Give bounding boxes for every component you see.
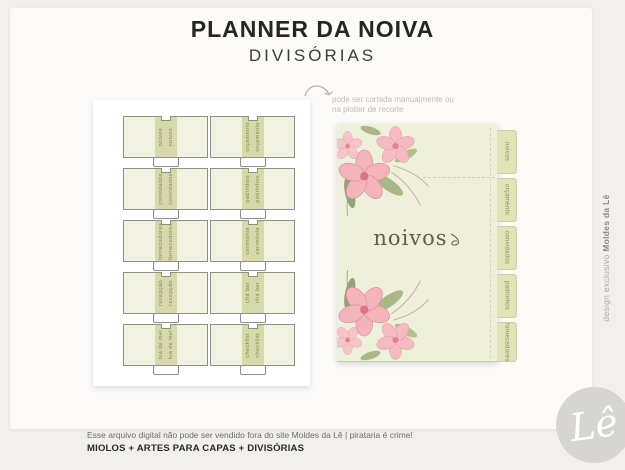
tab-notch — [161, 116, 171, 121]
divider-card: chá bar chá bar — [210, 272, 295, 314]
index-tab-label: orçamento — [504, 184, 510, 215]
copyright-notice: Esse arquivo digital não pode ser vendid… — [87, 430, 413, 440]
tab-notch — [161, 272, 171, 277]
logo-monogram: Lê — [568, 403, 621, 447]
tab-label: padrinhos — [245, 175, 251, 203]
fold-tab — [240, 261, 266, 271]
tab-label: checklist — [245, 333, 251, 358]
tab-label-band: orçamento orçamento — [242, 117, 264, 157]
divider-card: checklist checklist — [210, 324, 295, 366]
cut-note-line2: na plotter de recorte — [332, 105, 502, 115]
index-tab: orçamento — [497, 178, 517, 222]
divider-card: convidados convidados — [123, 168, 208, 210]
tab-label: padrinhos — [255, 175, 261, 203]
tab-label: orçamento — [245, 122, 251, 152]
tab-label: recepção — [168, 280, 174, 306]
tab-notch — [248, 168, 258, 173]
tab-label: chá bar — [245, 282, 251, 303]
divider-card: lua de mel lua de mel — [123, 324, 208, 366]
tab-label: cerimônia — [255, 227, 261, 254]
page-title: PLANNER DA NOIVA — [0, 16, 625, 43]
tab-notch — [161, 168, 171, 173]
tab-label: convidados — [168, 173, 174, 205]
index-tab: convidados — [497, 226, 517, 270]
tab-notch — [248, 324, 258, 329]
footer: Esse arquivo digital não pode ser vendid… — [87, 430, 413, 454]
divider-card: orçamento orçamento — [210, 116, 295, 158]
header: PLANNER DA NOIVA DIVISÓRIAS — [0, 16, 625, 66]
tab-label-band: padrinhos padrinhos — [242, 169, 264, 209]
index-tab-label: noivos — [504, 142, 510, 161]
design-credit-text: design exclusivo — [601, 252, 611, 322]
fold-tab — [153, 261, 179, 271]
page-subtitle: DIVISÓRIAS — [0, 46, 625, 66]
tab-label-band: recepção recepção — [155, 273, 177, 313]
tab-label-band: fornecedores fornecedores — [155, 221, 177, 261]
tab-label: lua de mel — [168, 330, 174, 359]
tab-label: chá bar — [255, 282, 261, 303]
fold-tab — [240, 157, 266, 167]
tab-label-band: noivos noivos — [155, 117, 177, 157]
index-tab-label: fornecedores — [504, 323, 510, 362]
fold-tab — [153, 313, 179, 323]
divider-page: noivos — [337, 124, 498, 362]
tab-notch — [161, 220, 171, 225]
cut-note-line1: pode ser cortada manualmente ou — [332, 95, 502, 105]
tab-label: convidados — [158, 173, 164, 205]
tab-label-band: convidados convidados — [155, 169, 177, 209]
flower-cluster-icon — [337, 264, 435, 362]
tab-label-band: lua de mel lua de mel — [155, 325, 177, 365]
tab-label: recepção — [158, 280, 164, 306]
tab-label: noivos — [158, 128, 164, 146]
divider-card: recepção recepção — [123, 272, 208, 314]
fold-tab — [240, 365, 266, 375]
index-tab-label: padrinhos — [504, 281, 510, 310]
index-tab-label: convidados — [504, 231, 510, 264]
tab-label: fornecedores — [158, 223, 164, 260]
tab-label: lua de mel — [158, 330, 164, 359]
index-tab: fornecedores — [497, 322, 517, 362]
fold-tab — [153, 365, 179, 375]
fold-tab — [153, 209, 179, 219]
flower-cluster-icon — [337, 124, 435, 222]
brand-name: Moldes da Lê — [601, 194, 611, 251]
fold-tab — [240, 209, 266, 219]
tab-label: noivos — [168, 128, 174, 146]
tab-label: fornecedores — [168, 223, 174, 260]
design-credit: design exclusivo Moldes da Lê — [601, 194, 611, 321]
index-tab: noivos — [497, 130, 517, 174]
tab-notch — [248, 220, 258, 225]
cut-guide-line — [423, 177, 495, 178]
tab-label: checklist — [255, 333, 261, 358]
divider-card: cerimônia cerimônia — [210, 220, 295, 262]
brand-logo: Lê — [556, 387, 625, 463]
divider-card: noivos noivos — [123, 116, 208, 158]
product-contents: MIOLOS + ARTES PARA CAPAS + DIVISÓRIAS — [87, 443, 413, 454]
tab-label-band: chá bar chá bar — [242, 273, 264, 313]
tab-label: cerimônia — [245, 227, 251, 254]
printable-sheet: noivos noivos orçamento orçamento convid… — [93, 100, 310, 386]
tab-label-band: checklist checklist — [242, 325, 264, 365]
tab-notch — [248, 116, 258, 121]
tab-notch — [161, 324, 171, 329]
divider-mockup: noivos noivos orçamento convidados padri… — [337, 124, 498, 362]
index-tab: padrinhos — [497, 274, 517, 318]
fold-tab — [240, 313, 266, 323]
cut-note: pode ser cortada manualmente ou na plott… — [332, 95, 502, 115]
section-title: noivos — [337, 226, 498, 250]
divider-card: padrinhos padrinhos — [210, 168, 295, 210]
divider-card: fornecedores fornecedores — [123, 220, 208, 262]
section-title-text: noivos — [373, 226, 447, 250]
tab-label-band: cerimônia cerimônia — [242, 221, 264, 261]
fold-tab — [153, 157, 179, 167]
tab-label: orçamento — [255, 122, 261, 152]
tab-notch — [248, 272, 258, 277]
flourish-icon — [449, 231, 462, 249]
